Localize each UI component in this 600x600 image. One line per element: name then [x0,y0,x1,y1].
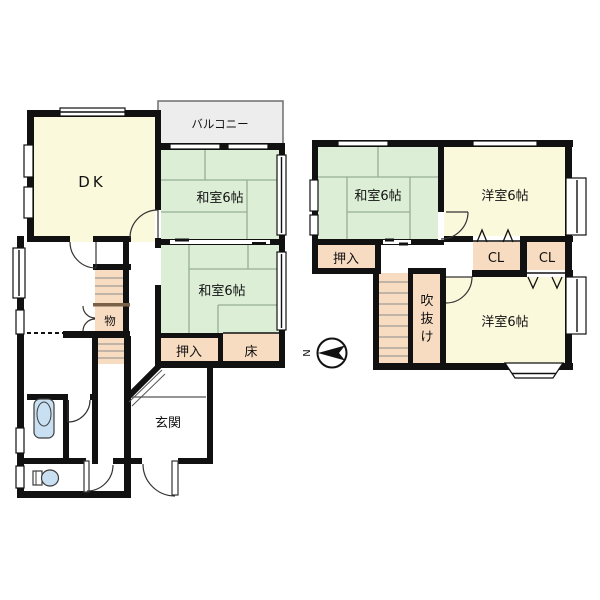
toilet-door [87,465,113,491]
washitsu-2f-label: 和室6帖 [354,188,401,204]
yoshitsu-top-label: 洋室6帖 [481,188,528,204]
balcony-label: バルコニー [191,117,248,131]
dk-left-window-2 [24,187,33,218]
yoshitsu-bottom-right-window [566,277,586,334]
washitsu-1f-top-label: 和室6帖 [196,190,243,206]
washitsu-2f-left-window-2 [310,215,318,235]
floor-plan-svg: N DK バルコニー 和室6帖 和室6帖 押入 床 物 玄関 和室6帖 洋室6帖… [0,0,600,600]
toilet-window [16,466,24,488]
dk-left-window-1 [24,145,33,177]
stairs-2f [378,273,408,365]
void-label-char2: 抜 [420,311,433,327]
floor-plan-page: N DK バルコニー 和室6帖 和室6帖 押入 床 物 玄関 和室6帖 洋室6帖… [0,0,600,600]
yoshitsu-2f-top-window [473,141,537,146]
left-window-1 [16,310,24,334]
genkan-label: 玄関 [155,416,181,431]
closet-right-label: CL [539,251,556,266]
yoshitsu-bottom-label: 洋室6帖 [481,314,528,330]
compass-north-label: N [302,349,313,356]
washitsu-2f-top-window [338,141,388,146]
dk-label: DK [78,173,105,191]
fixtures [33,399,59,486]
storage-label: 物 [104,314,116,328]
stairs-1f-upper [95,270,125,304]
washitsu-2f-left-window-1 [310,180,318,211]
compass-icon: N [302,339,347,368]
void-label-char1: 吹 [420,294,433,309]
balcony-window-1 [170,144,220,149]
yoshitsu-top-right-window [566,178,586,235]
washitsu-1f-bottom-label: 和室6帖 [198,283,245,299]
oshiire-2f-label: 押入 [333,252,359,267]
balcony-window-2 [228,144,268,149]
bay-window [505,363,563,378]
bathroom-door [68,400,90,422]
storage-door-lower [83,319,95,331]
tokonoma-label: 床 [244,345,257,360]
storage-door-upper [83,306,95,318]
entrance-door [143,464,175,496]
hall-door [70,242,96,268]
storage-lintel [93,303,130,307]
closet-left-label: CL [488,251,505,266]
toilet-icon [33,471,42,485]
void-label-char3: け [420,330,433,345]
bathroom-window [16,428,24,453]
oshiire-1f-label: 押入 [176,345,202,360]
